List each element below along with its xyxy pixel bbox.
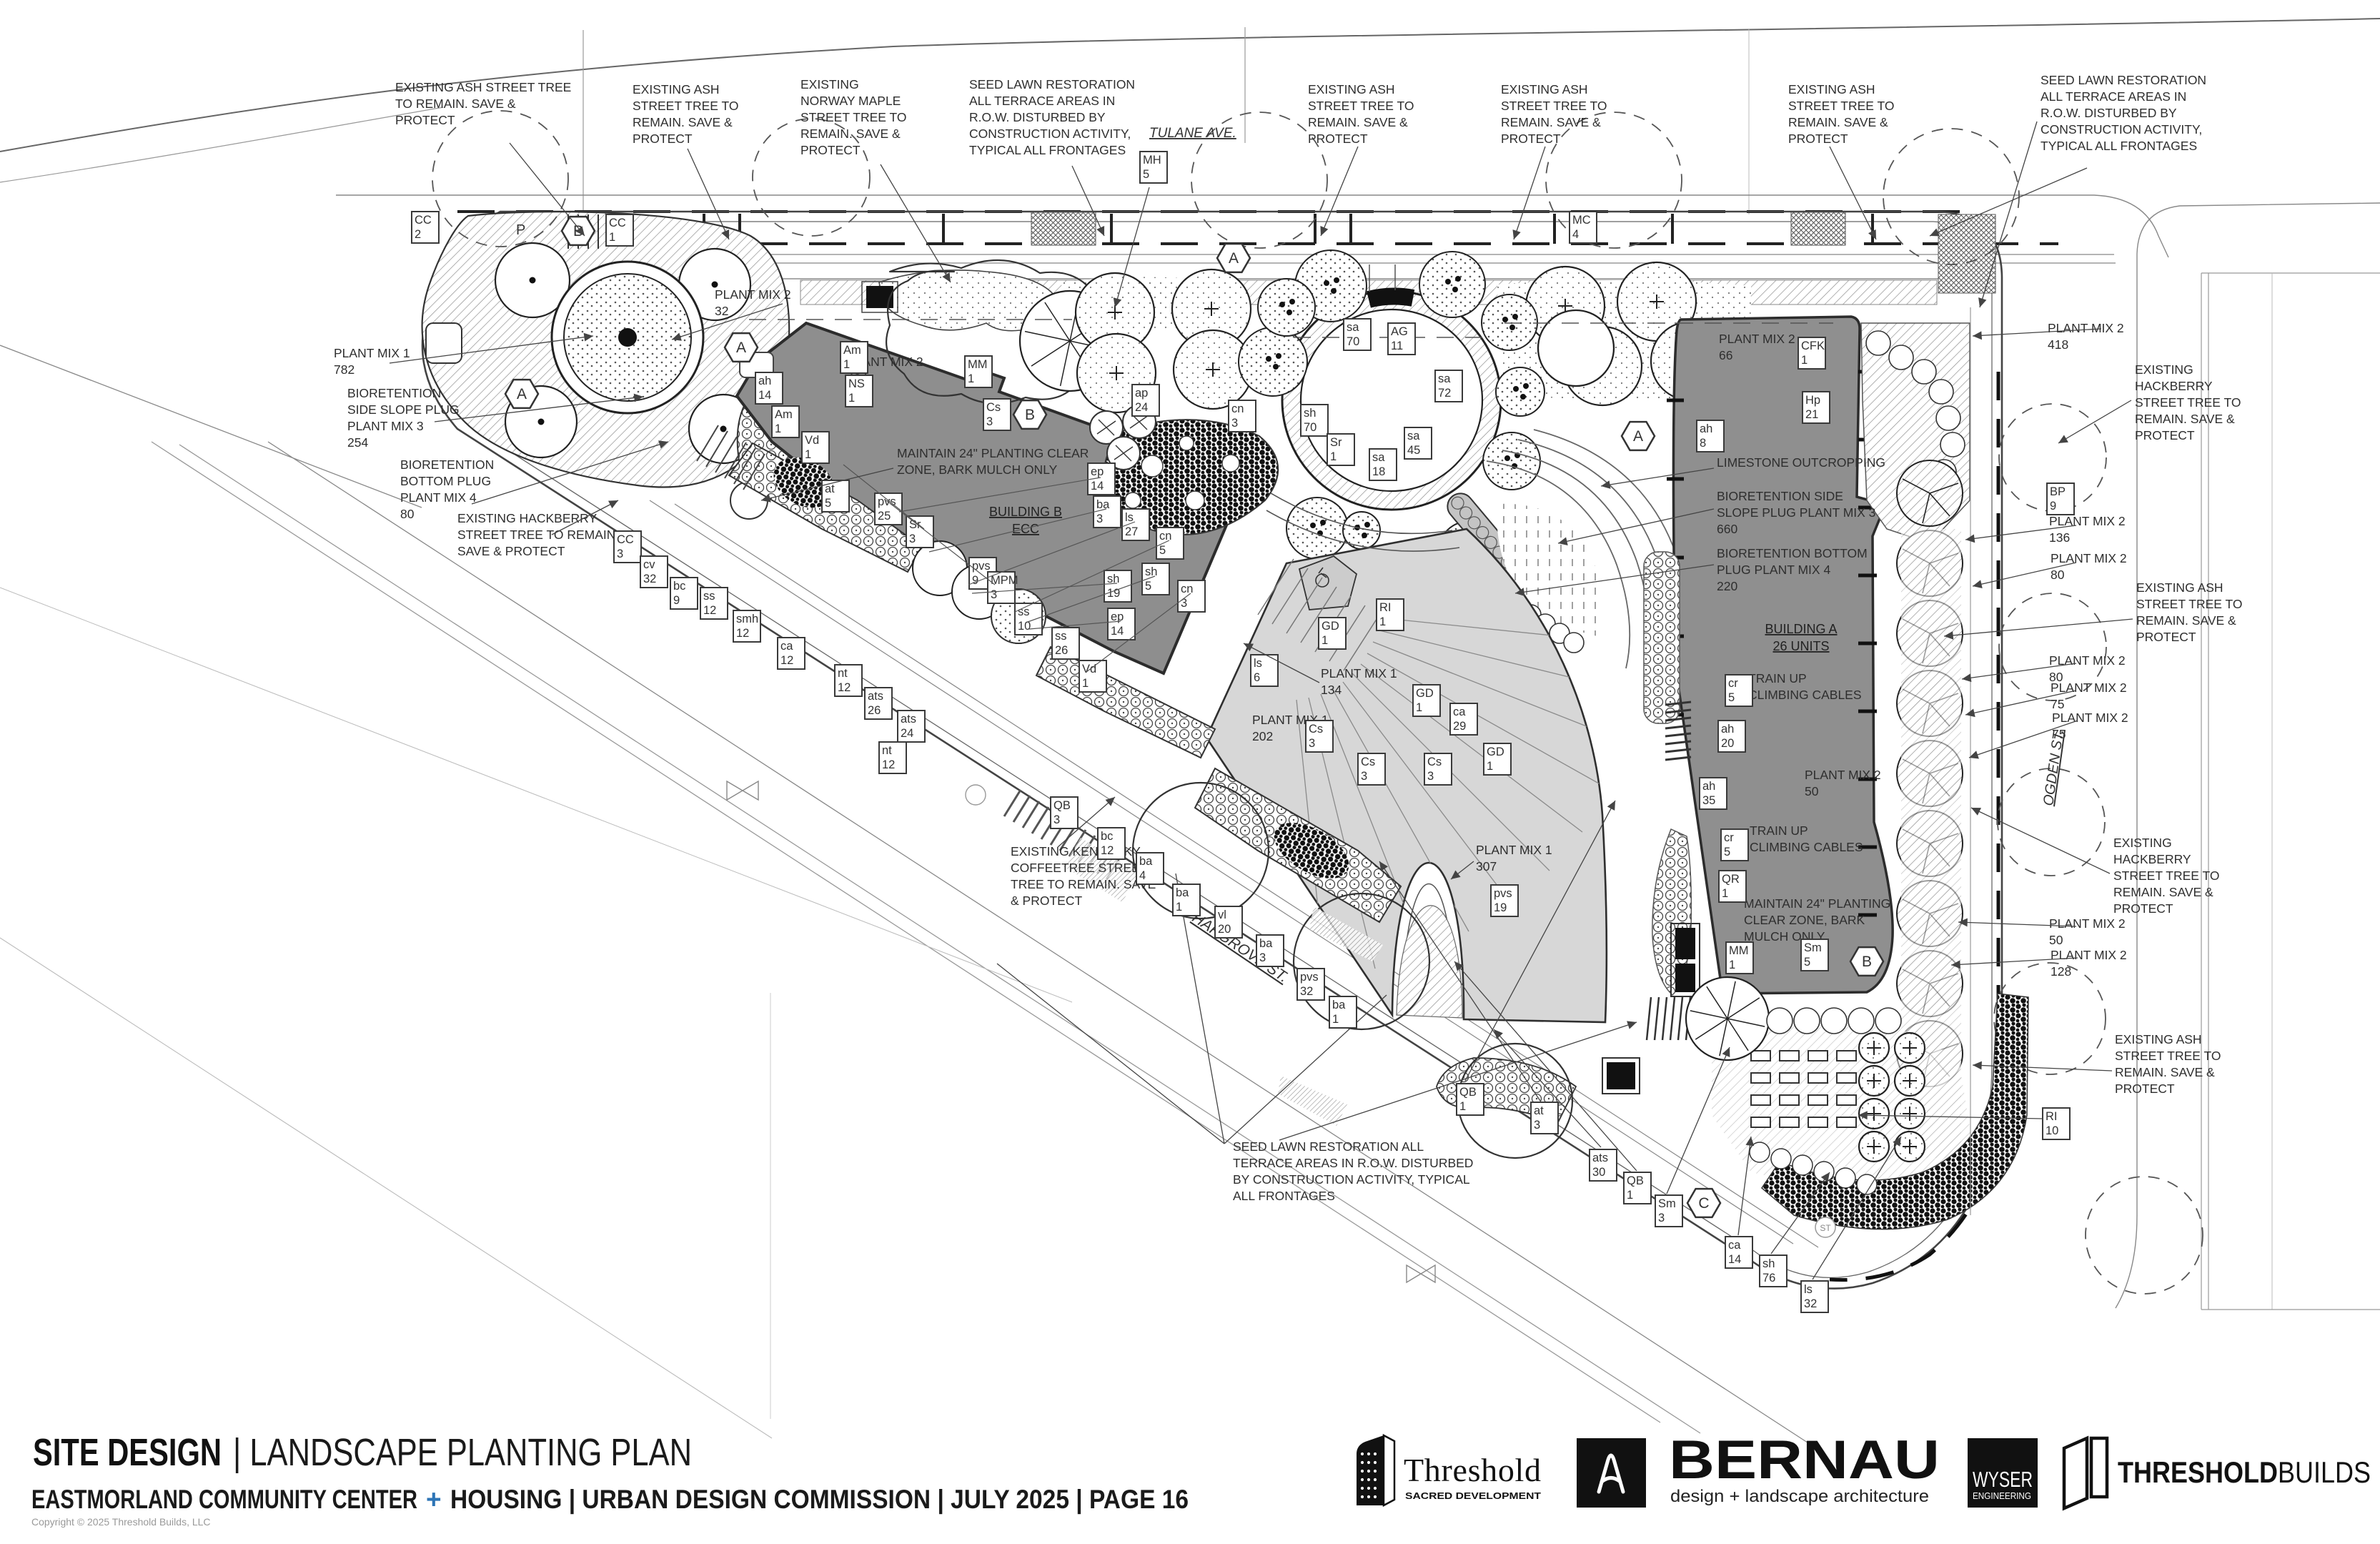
svg-text:32: 32 [1804,1297,1817,1310]
svg-text:Sm: Sm [1804,941,1822,954]
svg-text:3: 3 [909,533,916,545]
svg-text:ENGINEERING: ENGINEERING [1973,1490,2031,1501]
svg-text:A: A [1633,428,1643,445]
svg-text:cr: cr [1728,677,1738,690]
svg-text:A: A [517,386,527,402]
svg-text:32: 32 [1300,985,1313,998]
svg-text:nt: nt [882,744,892,757]
svg-text:SITE DESIGN| LANDSCAPE PLANTIN: SITE DESIGN| LANDSCAPE PLANTING PLAN [33,1431,692,1474]
svg-text:1: 1 [805,448,811,461]
svg-text:BERNAU: BERNAU [1669,1430,1940,1490]
svg-text:12: 12 [1101,844,1114,857]
svg-text:Sr: Sr [909,518,921,531]
svg-text:3: 3 [1231,417,1238,430]
svg-text:35: 35 [1702,794,1715,807]
svg-text:smh: smh [736,613,758,625]
svg-text:3: 3 [617,548,623,560]
svg-text:1: 1 [609,231,615,244]
svg-text:1: 1 [775,422,781,435]
svg-text:sh: sh [1304,407,1316,420]
svg-text:9: 9 [972,574,978,587]
svg-text:sa: sa [1347,321,1359,334]
svg-text:1: 1 [843,358,850,371]
svg-text:MPM: MPM [991,574,1018,587]
svg-text:GD: GD [1487,746,1504,758]
svg-text:1: 1 [1801,354,1808,367]
svg-text:12: 12 [882,758,895,771]
svg-text:Am: Am [775,408,793,421]
svg-text:QB: QB [1459,1086,1477,1099]
svg-text:ap: ap [1135,387,1148,400]
svg-text:11: 11 [1391,340,1403,352]
svg-text:Threshold: Threshold [1404,1452,1541,1488]
svg-text:GD: GD [1322,620,1339,633]
svg-text:14: 14 [758,389,771,402]
svg-text:CFK: CFK [1801,340,1825,352]
svg-text:18: 18 [1372,465,1385,478]
svg-text:76: 76 [1762,1272,1775,1285]
svg-text:20: 20 [1721,737,1734,750]
svg-text:Sr: Sr [1330,436,1342,449]
svg-text:ls: ls [1804,1283,1813,1296]
svg-text:26: 26 [1055,644,1068,657]
svg-text:RI: RI [1379,601,1392,614]
svg-text:cv: cv [643,558,655,571]
svg-text:1: 1 [1332,1013,1339,1026]
svg-text:EASTMORLAND COMMUNITY CENTER+H: EASTMORLAND COMMUNITY CENTER+HOUSING | U… [31,1485,1189,1515]
svg-text:Vd: Vd [805,434,819,447]
svg-text:30: 30 [1592,1166,1605,1179]
svg-text:nt: nt [838,667,848,680]
svg-text:pvs: pvs [1494,887,1512,900]
svg-text:26 UNITS: 26 UNITS [1772,639,1829,653]
svg-text:72: 72 [1438,387,1451,400]
svg-text:45: 45 [1407,444,1420,457]
svg-text:ats: ats [901,713,916,726]
svg-text:cr: cr [1724,831,1734,844]
svg-text:ats: ats [1592,1152,1608,1164]
svg-text:1: 1 [1722,887,1728,900]
svg-text:Am: Am [843,344,861,357]
svg-text:ca: ca [1453,706,1466,718]
svg-text:CC: CC [609,217,626,229]
svg-text:BP: BP [2050,485,2066,498]
svg-text:12: 12 [780,654,793,667]
svg-text:ba: ba [1139,855,1153,868]
svg-text:3: 3 [991,588,997,601]
svg-text:1: 1 [848,392,855,405]
svg-text:MM: MM [1729,944,1749,957]
svg-text:bc: bc [673,580,685,593]
svg-text:24: 24 [1135,401,1148,414]
svg-text:sa: sa [1372,451,1385,464]
svg-text:ls: ls [1125,511,1134,524]
svg-text:12: 12 [736,627,749,640]
svg-text:3: 3 [1427,770,1434,783]
svg-text:ba: ba [1332,999,1346,1011]
svg-text:3: 3 [1658,1212,1665,1224]
svg-text:BUILDING B: BUILDING B [989,505,1062,519]
svg-text:bc: bc [1101,830,1113,843]
svg-text:10: 10 [2046,1124,2058,1137]
svg-text:26: 26 [868,704,881,717]
svg-text:3: 3 [1259,951,1266,964]
svg-text:pvs: pvs [1300,971,1319,984]
svg-text:19: 19 [1107,587,1120,600]
svg-text:QB: QB [1053,799,1071,812]
svg-text:ats: ats [868,690,883,703]
svg-text:25: 25 [878,510,891,523]
svg-text:ca: ca [780,640,793,653]
svg-text:32: 32 [643,573,656,585]
svg-text:B: B [1025,407,1035,423]
svg-text:Hp: Hp [1805,394,1820,407]
svg-text:1: 1 [1176,901,1182,914]
svg-text:5: 5 [1728,691,1735,704]
svg-text:Cs: Cs [1361,756,1375,768]
svg-text:5: 5 [1159,544,1166,557]
svg-text:MM: MM [968,358,988,371]
svg-text:70: 70 [1347,335,1359,348]
svg-text:5: 5 [1804,956,1810,969]
svg-text:Cs: Cs [986,401,1001,414]
svg-text:Copyright © 2025 Threshold Bui: Copyright © 2025 Threshold Builds, LLC [31,1516,211,1528]
svg-text:20: 20 [1218,923,1231,936]
svg-text:5: 5 [1724,846,1730,858]
svg-text:ss: ss [1055,630,1067,643]
svg-text:CC: CC [617,533,634,546]
svg-text:QR: QR [1722,873,1740,886]
svg-text:1: 1 [1487,760,1493,773]
svg-text:3: 3 [986,415,993,428]
svg-text:ba: ba [1259,937,1273,950]
svg-text:sh: sh [1145,565,1157,578]
svg-text:cn: cn [1231,402,1244,415]
svg-text:P: P [516,222,525,238]
svg-text:NS: NS [848,377,865,390]
svg-text:4: 4 [1139,869,1146,882]
svg-text:B: B [1862,954,1872,970]
svg-text:CC: CC [415,214,432,227]
svg-text:QB: QB [1627,1174,1644,1187]
svg-text:ba: ba [1096,498,1110,511]
svg-text:ST: ST [1820,1223,1831,1233]
svg-text:21: 21 [1805,408,1818,421]
svg-text:vl: vl [1218,909,1226,921]
svg-text:cn: cn [1159,530,1171,543]
svg-text:ah: ah [1700,422,1712,435]
svg-text:LIMESTONE OUTCROPPING: LIMESTONE OUTCROPPING [1717,455,1885,470]
svg-text:1: 1 [1729,959,1735,971]
svg-text:1: 1 [1379,615,1386,628]
svg-text:14: 14 [1728,1253,1741,1266]
svg-text:3: 3 [1053,813,1060,826]
svg-text:pvs: pvs [972,560,991,573]
svg-text:1: 1 [1322,634,1328,647]
svg-text:1: 1 [1627,1189,1633,1202]
svg-text:at: at [1534,1104,1544,1117]
svg-text:SACRED DEVELOPMENT: SACRED DEVELOPMENT [1405,1490,1541,1501]
svg-text:24: 24 [901,727,913,740]
svg-text:Sm: Sm [1658,1197,1676,1210]
svg-text:29: 29 [1453,720,1466,733]
svg-text:ah: ah [1721,723,1734,736]
svg-text:Cs: Cs [1427,756,1442,768]
svg-text:THRESHOLDBUILDS: THRESHOLDBUILDS [2118,1455,2371,1489]
svg-text:12: 12 [838,681,851,694]
svg-text:3: 3 [1534,1119,1540,1132]
svg-text:9: 9 [673,594,680,607]
svg-text:A: A [736,340,746,356]
svg-text:ls: ls [1254,657,1262,670]
svg-text:GD: GD [1416,687,1434,700]
svg-text:1: 1 [968,372,974,385]
svg-text:5: 5 [1145,580,1151,593]
svg-text:ba: ba [1176,886,1189,899]
svg-text:12: 12 [703,604,716,617]
svg-text:WYSER: WYSER [1973,1467,2033,1492]
svg-text:design + landscape architectur: design + landscape architecture [1670,1487,1929,1506]
svg-text:9: 9 [2050,500,2056,513]
svg-text:Cs: Cs [1309,723,1323,736]
svg-text:MC: MC [1572,214,1591,227]
svg-text:1: 1 [1459,1100,1466,1113]
svg-text:1: 1 [1082,677,1089,690]
svg-text:sh: sh [1762,1257,1775,1270]
svg-text:ss: ss [703,590,715,603]
svg-text:3: 3 [1309,737,1315,750]
svg-text:A: A [1229,250,1239,267]
svg-text:5: 5 [825,497,831,510]
svg-text:ep: ep [1091,465,1104,478]
svg-text:1: 1 [1330,450,1337,463]
svg-text:TULANE AVE.: TULANE AVE. [1149,126,1236,141]
svg-text:8: 8 [1700,437,1706,450]
svg-text:C: C [1698,1195,1709,1212]
svg-text:BUILDING A: BUILDING A [1765,622,1837,636]
svg-text:ca: ca [1728,1239,1741,1252]
svg-text:ECC: ECC [1012,522,1039,536]
svg-text:cn: cn [1181,583,1193,595]
svg-text:Vd: Vd [1082,663,1096,675]
svg-text:AG: AG [1391,325,1408,338]
svg-text:19: 19 [1494,901,1507,914]
svg-text:MH: MH [1143,154,1161,167]
svg-text:3: 3 [1096,513,1103,525]
svg-text:14: 14 [1111,625,1124,638]
svg-text:3: 3 [1361,770,1367,783]
svg-text:RI: RI [2046,1110,2058,1123]
svg-text:4: 4 [1572,228,1579,241]
svg-text:sa: sa [1438,372,1451,385]
svg-text:14: 14 [1091,480,1104,493]
svg-text:5: 5 [1143,168,1149,181]
svg-text:ah: ah [1702,780,1715,793]
svg-text:sa: sa [1407,430,1420,442]
svg-text:70: 70 [1304,421,1317,434]
svg-text:ah: ah [758,375,771,387]
svg-text:2: 2 [415,228,421,241]
svg-text:1: 1 [1416,701,1422,714]
svg-text:27: 27 [1125,525,1138,538]
svg-text:6: 6 [1254,671,1260,684]
